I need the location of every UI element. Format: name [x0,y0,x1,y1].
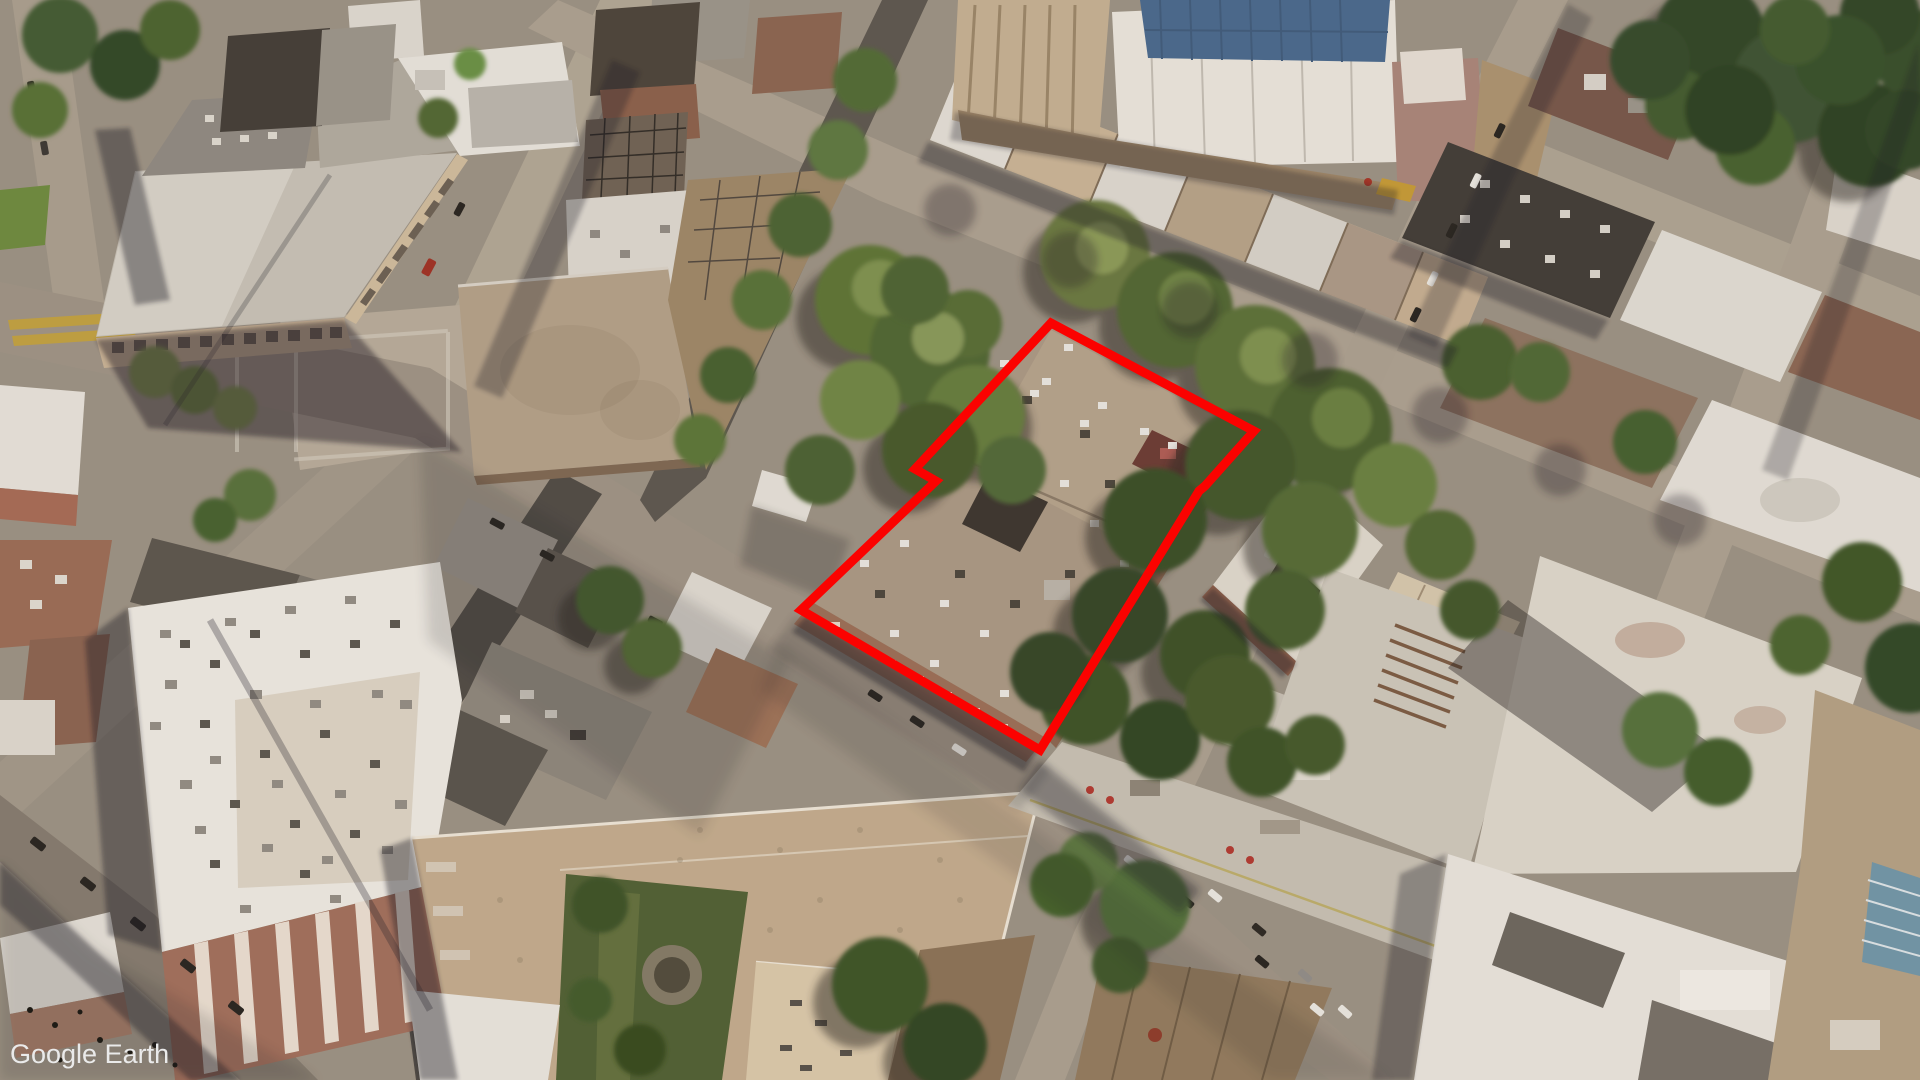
svg-text:Google Earth: Google Earth [10,1039,169,1069]
